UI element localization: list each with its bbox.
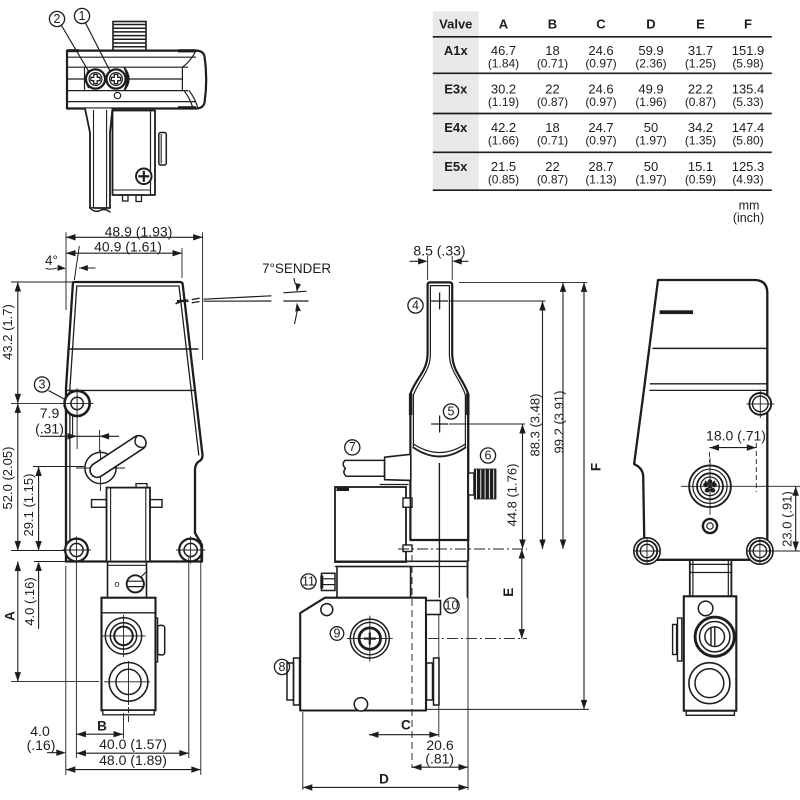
svg-text:44.8 (1.76): 44.8 (1.76): [504, 464, 519, 527]
svg-text:F: F: [744, 16, 752, 31]
svg-text:(1.97): (1.97): [635, 173, 666, 187]
svg-text:4°: 4°: [45, 253, 58, 268]
svg-text:(0.87): (0.87): [537, 173, 568, 187]
svg-text:E5x: E5x: [444, 159, 468, 174]
svg-text:2: 2: [54, 12, 61, 26]
svg-text:o: o: [114, 579, 119, 589]
svg-text:Valve: Valve: [439, 16, 472, 31]
svg-text:C: C: [401, 718, 411, 733]
svg-text:(5.80): (5.80): [732, 134, 763, 148]
svg-text:(0.85): (0.85): [488, 173, 519, 187]
svg-text:6: 6: [485, 448, 492, 462]
svg-text:F: F: [589, 463, 604, 471]
svg-text:(0.59): (0.59): [685, 173, 716, 187]
svg-text:D: D: [646, 16, 655, 31]
svg-text:B: B: [97, 718, 107, 733]
svg-text:E4x: E4x: [444, 120, 468, 135]
svg-text:4.0 (.16): 4.0 (.16): [22, 577, 37, 625]
svg-text:D: D: [379, 771, 389, 786]
svg-text:48.0 (1.89): 48.0 (1.89): [99, 752, 167, 768]
svg-text:4: 4: [412, 298, 419, 312]
svg-text:(5.33): (5.33): [732, 95, 763, 109]
svg-text:B: B: [548, 16, 557, 31]
svg-text:A: A: [3, 611, 18, 621]
svg-text:(0.97): (0.97): [585, 95, 616, 109]
svg-text:(.81): (.81): [425, 750, 454, 766]
svg-text:7: 7: [349, 440, 356, 454]
svg-text:(.16): (.16): [27, 737, 56, 753]
svg-text:52.0 (2.05): 52.0 (2.05): [0, 447, 15, 510]
svg-text:(1.97): (1.97): [635, 134, 666, 148]
svg-text:(0.87): (0.87): [685, 95, 716, 109]
svg-text:C: C: [596, 16, 606, 31]
svg-text:5: 5: [448, 404, 455, 418]
svg-text:A: A: [499, 16, 509, 31]
svg-text:(inch): (inch): [733, 211, 764, 225]
svg-text:7°SENDER: 7°SENDER: [262, 261, 331, 276]
svg-text:A1x: A1x: [444, 43, 469, 58]
svg-text:(0.97): (0.97): [585, 57, 616, 71]
svg-text:(1.96): (1.96): [635, 95, 666, 109]
svg-text:(.31): (.31): [35, 421, 64, 437]
svg-text:8.5 (.33): 8.5 (.33): [413, 243, 465, 259]
svg-text:3: 3: [39, 377, 46, 391]
svg-text:(1.19): (1.19): [488, 95, 519, 109]
svg-text:(1.84): (1.84): [488, 57, 519, 71]
svg-text:40.9 (1.61): 40.9 (1.61): [94, 239, 162, 255]
svg-text:(0.71): (0.71): [537, 57, 568, 71]
svg-text:(1.13): (1.13): [585, 173, 616, 187]
svg-text:40.0 (1.57): 40.0 (1.57): [99, 736, 167, 752]
svg-text:29.1 (1.15): 29.1 (1.15): [21, 474, 36, 537]
svg-text:11: 11: [302, 574, 315, 588]
svg-text:E: E: [501, 588, 516, 597]
svg-text:88.3 (3.48): 88.3 (3.48): [527, 394, 542, 457]
svg-text:(5.98): (5.98): [732, 57, 763, 71]
svg-text:23.0 (.91): 23.0 (.91): [779, 491, 794, 547]
svg-text:(1.35): (1.35): [685, 134, 716, 148]
svg-text:1: 1: [79, 9, 86, 23]
svg-text:8: 8: [279, 660, 286, 674]
svg-text:7.9: 7.9: [40, 405, 60, 421]
svg-text:99.2 (3.91): 99.2 (3.91): [551, 391, 566, 454]
svg-text:(0.87): (0.87): [537, 95, 568, 109]
svg-text:(0.97): (0.97): [585, 134, 616, 148]
svg-text:(0.71): (0.71): [537, 134, 568, 148]
svg-text:(1.66): (1.66): [488, 134, 519, 148]
svg-text:18.0 (.71): 18.0 (.71): [706, 428, 766, 444]
svg-text:9: 9: [334, 626, 341, 640]
svg-text:E: E: [696, 16, 705, 31]
svg-text:E3x: E3x: [444, 81, 468, 96]
svg-text:(1.25): (1.25): [685, 57, 716, 71]
svg-text:(4.93): (4.93): [732, 173, 763, 187]
svg-text:10: 10: [445, 598, 459, 612]
svg-text:(2.36): (2.36): [635, 57, 666, 71]
svg-text:43.2 (1.7): 43.2 (1.7): [0, 304, 15, 360]
